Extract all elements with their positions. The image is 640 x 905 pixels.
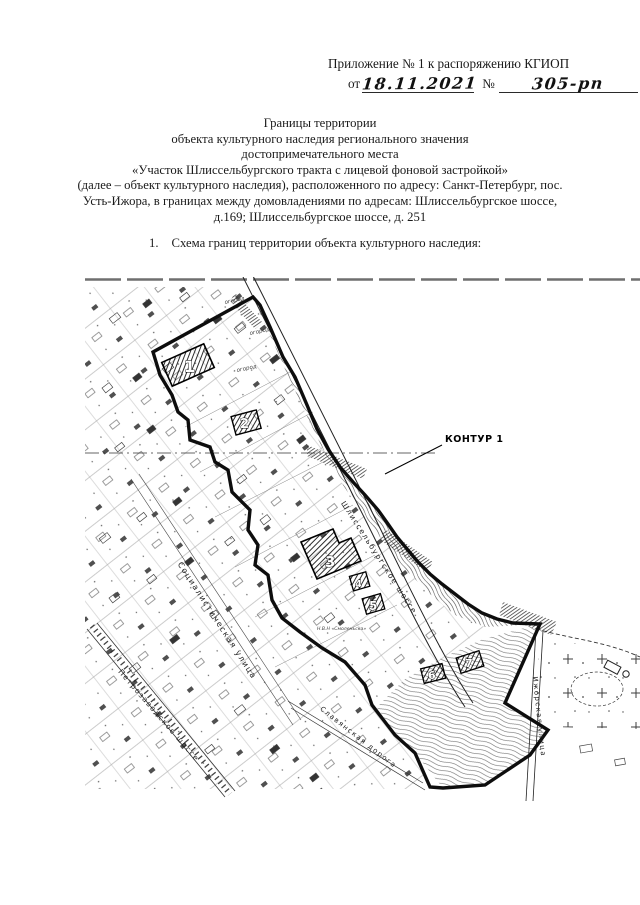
list-item-1: 1.Схема границ территории объекта культу… (149, 236, 481, 251)
title-line-6: Усть-Ижора, в границах между домовладени… (30, 194, 610, 210)
cemetery-area (533, 629, 640, 729)
document-page: Приложение № 1 к распоряжению КГИОП от 1… (0, 0, 640, 905)
building-2-number: 2 (240, 417, 249, 432)
map-svg: 1 2 3 4 5 6 7 (85, 277, 640, 803)
title-line-2: объекта культурного наследия регионально… (30, 132, 610, 148)
appendix-line1: Приложение № 1 к распоряжению КГИОП (328, 56, 638, 72)
appendix-header: Приложение № 1 к распоряжению КГИОП от 1… (328, 56, 638, 93)
title-line-5: (далее – объект культурного наследия), р… (30, 178, 610, 194)
document-title: Границы территории объекта культурного н… (30, 116, 610, 225)
building-1-number: 1 (184, 357, 195, 376)
building-5-number: 5 (369, 599, 377, 613)
title-line-3: достопримечательного места (30, 147, 610, 163)
title-line-1: Границы территории (30, 116, 610, 132)
building-7-number: 7 (465, 657, 473, 670)
list-item-text: Схема границ территории объекта культурн… (172, 236, 482, 250)
area-label-note: Н.В.Н «Смоленьска» (317, 626, 366, 632)
list-item-number: 1. (149, 236, 159, 250)
from-label: от (348, 76, 360, 93)
building-3-number: 3 (325, 553, 335, 571)
number-underline: 305-рп (499, 75, 638, 93)
appendix-line2: от 18.11.2021 № 305-рп (348, 75, 638, 93)
building-6-number: 6 (428, 669, 436, 682)
title-line-4: «Участок Шлиссельбургского тракта с лице… (30, 163, 610, 179)
kontur-label: КОНТУР 1 (445, 434, 503, 445)
boundary-scheme-map: 1 2 3 4 5 6 7 (85, 277, 640, 803)
handwritten-date: 18.11.2021 (361, 75, 478, 92)
date-underline: 18.11.2021 (362, 75, 474, 93)
title-line-7: д.169; Шлиссельбургское шоссе, д. 251 (30, 210, 610, 226)
handwritten-number: 305-рп (532, 76, 605, 93)
kontur-leader-line (385, 445, 442, 474)
building-4-number: 4 (355, 579, 362, 590)
